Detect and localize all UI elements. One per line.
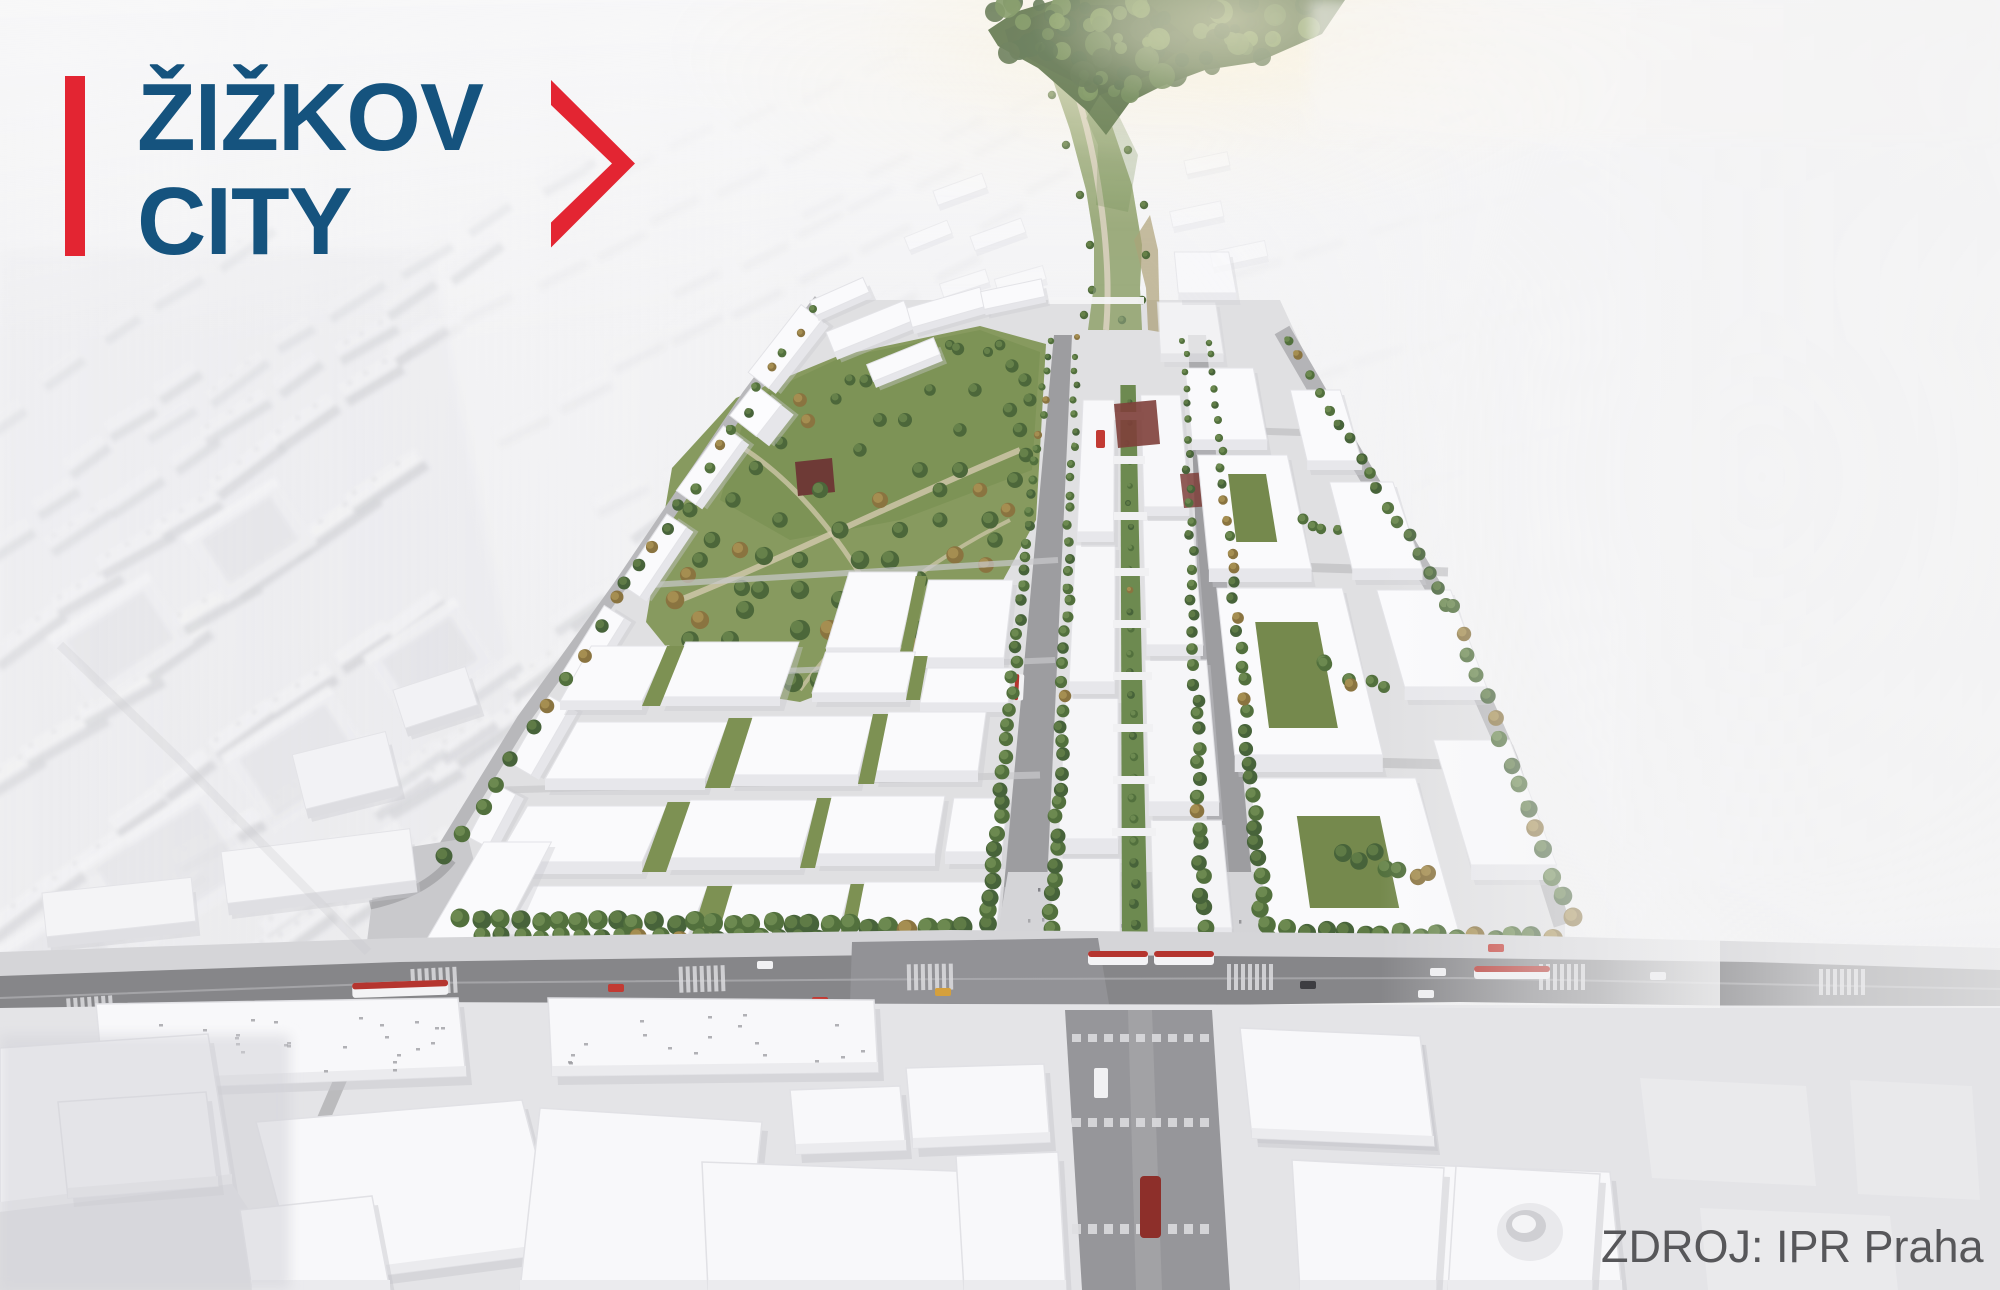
svg-text:ZDROJ: IPR Praha: ZDROJ: IPR Praha xyxy=(1601,1221,1985,1272)
svg-text:ŽIŽKOV: ŽIŽKOV xyxy=(137,63,484,171)
svg-text:CITY: CITY xyxy=(137,168,352,275)
